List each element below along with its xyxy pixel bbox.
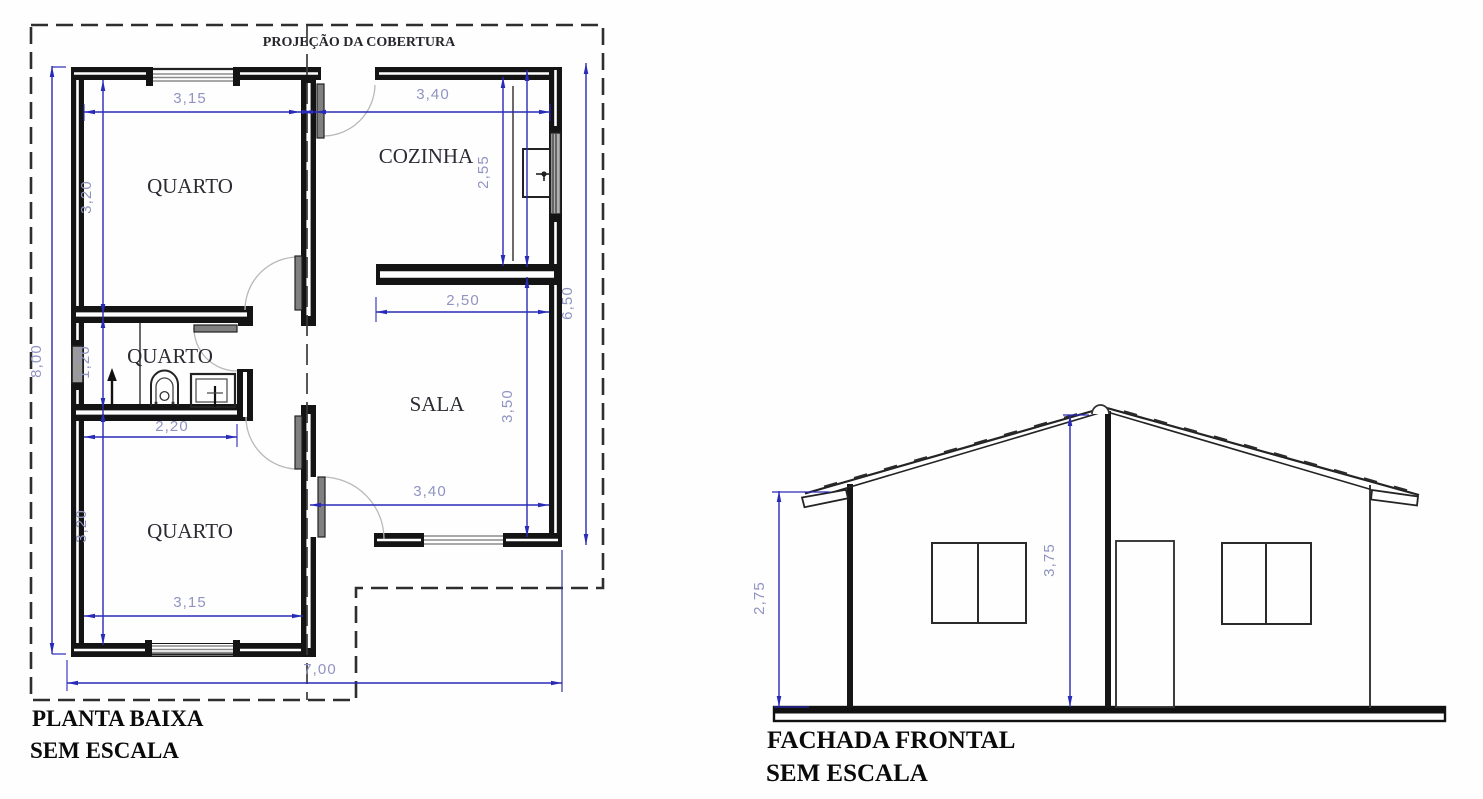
svg-text:QUARTO: QUARTO bbox=[147, 174, 233, 198]
svg-text:2,20: 2,20 bbox=[155, 418, 189, 435]
svg-text:3,40: 3,40 bbox=[416, 86, 450, 103]
svg-text:3,40: 3,40 bbox=[413, 483, 447, 500]
svg-text:3,15: 3,15 bbox=[173, 594, 207, 611]
svg-text:PLANTA BAIXA: PLANTA BAIXA bbox=[32, 706, 204, 731]
svg-text:6,50: 6,50 bbox=[559, 286, 576, 320]
svg-text:8,00: 8,00 bbox=[28, 344, 45, 378]
svg-text:COZINHA: COZINHA bbox=[379, 144, 474, 168]
svg-text:3,50: 3,50 bbox=[499, 389, 516, 423]
svg-text:3,15: 3,15 bbox=[173, 90, 207, 107]
svg-text:SALA: SALA bbox=[410, 392, 466, 416]
svg-text:SEM ESCALA: SEM ESCALA bbox=[766, 760, 928, 787]
svg-text:3,20: 3,20 bbox=[78, 180, 95, 214]
svg-text:FACHADA FRONTAL: FACHADA FRONTAL bbox=[767, 727, 1015, 754]
svg-text:3,20: 3,20 bbox=[73, 509, 90, 543]
svg-text:2,50: 2,50 bbox=[446, 292, 480, 309]
svg-text:SEM ESCALA: SEM ESCALA bbox=[30, 738, 179, 763]
svg-text:QUARTO: QUARTO bbox=[147, 519, 233, 543]
svg-text:2,55: 2,55 bbox=[475, 155, 492, 189]
svg-text:PROJEÇÃO DA COBERTURA: PROJEÇÃO DA COBERTURA bbox=[263, 32, 456, 50]
svg-text:2,75: 2,75 bbox=[751, 581, 768, 615]
svg-text:QUARTO: QUARTO bbox=[127, 344, 213, 368]
svg-text:3,75: 3,75 bbox=[1041, 543, 1058, 577]
svg-text:1,20: 1,20 bbox=[76, 345, 93, 379]
svg-text:7,00: 7,00 bbox=[303, 661, 337, 678]
